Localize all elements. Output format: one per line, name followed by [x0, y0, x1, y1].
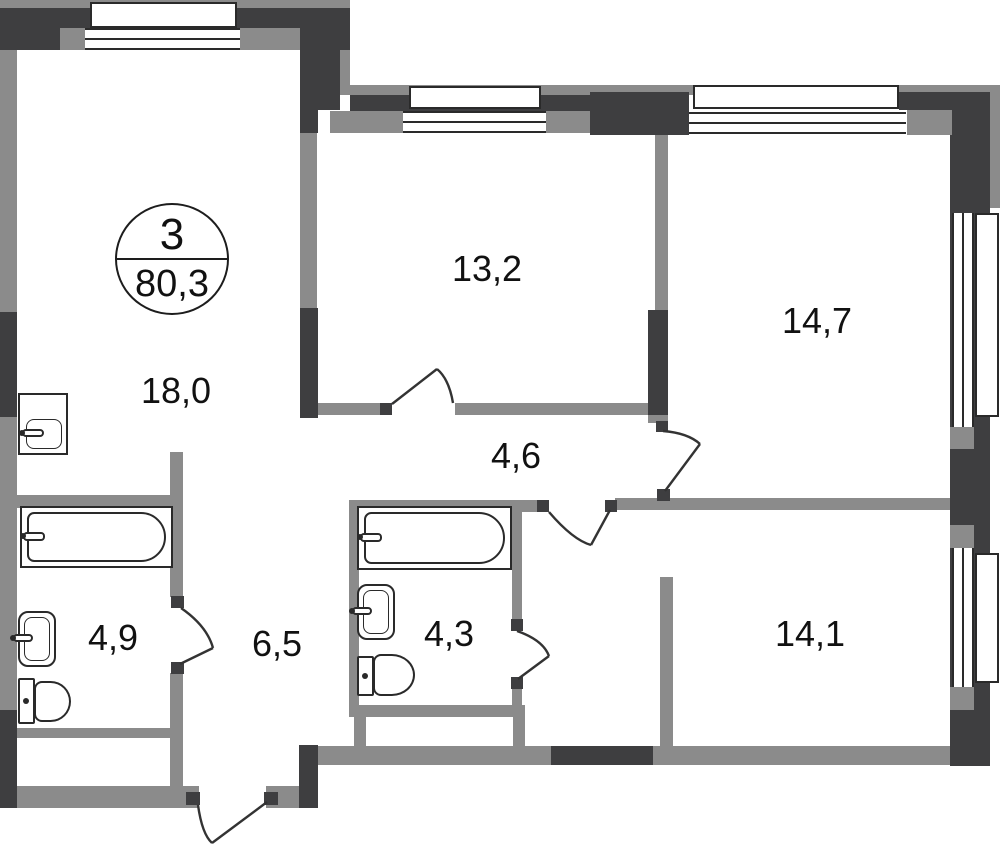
wall-segment — [648, 415, 668, 423]
toilet-icon — [34, 681, 71, 722]
wall-segment — [354, 705, 525, 717]
window — [689, 112, 906, 134]
faucet-dot — [357, 534, 363, 540]
wall-segment — [653, 746, 950, 765]
door-hall — [537, 500, 617, 545]
window — [85, 28, 240, 50]
room-label-bedroom-top: 13,2 — [452, 251, 522, 287]
bathtub-inner — [364, 512, 505, 564]
wall-segment — [0, 786, 199, 808]
window — [952, 548, 974, 687]
wall-segment — [266, 786, 299, 808]
exterior-wall — [899, 92, 950, 110]
wall-segment — [354, 717, 366, 746]
faucet-icon — [23, 532, 45, 541]
exterior-wall — [0, 710, 17, 808]
window-pane-line — [962, 548, 964, 687]
exterior-wall — [300, 50, 340, 110]
faucet-dot — [349, 608, 355, 614]
toilet-button — [362, 673, 368, 679]
wall-segment — [513, 717, 525, 746]
window — [952, 213, 974, 427]
door-room-13-2 — [380, 369, 453, 415]
wall-segment — [990, 85, 1000, 208]
wall-block — [300, 308, 318, 418]
faucet-dot — [10, 635, 16, 641]
wall-block — [648, 310, 668, 415]
window-jamb — [546, 111, 590, 133]
wall-segment — [660, 577, 673, 746]
room-label-hall-lower: 6,5 — [252, 626, 302, 662]
window-sill — [90, 2, 237, 28]
window-pane-line — [85, 38, 240, 40]
room-label-living: 18,0 — [141, 373, 211, 409]
room-label-bathroom-left: 4,9 — [88, 620, 138, 656]
toilet-button — [23, 698, 29, 704]
window-jamb — [330, 111, 403, 133]
window-sill — [693, 85, 899, 109]
wall-segment — [950, 427, 974, 449]
window-sill — [409, 86, 541, 109]
toilet-icon — [373, 654, 415, 696]
wall-segment — [300, 133, 317, 308]
wall-segment — [17, 728, 176, 738]
wall-segment — [318, 746, 551, 765]
door-room-14-7 — [656, 421, 700, 501]
window-jamb — [907, 110, 952, 135]
door-bathroom-4-9 — [171, 596, 213, 674]
window-pane-line — [403, 121, 546, 123]
wall-segment — [512, 500, 522, 620]
faucet-icon — [360, 533, 382, 542]
entrance-door — [186, 792, 278, 843]
faucet-dot — [20, 533, 26, 539]
door-bathroom-4-3 — [511, 619, 549, 689]
faucet-icon — [13, 634, 33, 642]
wall-segment — [0, 50, 17, 312]
window-pane-line — [962, 213, 964, 427]
bathtub-inner — [27, 512, 166, 562]
exterior-wall — [590, 92, 689, 135]
room-label-bathroom-middle: 4,3 — [424, 616, 474, 652]
wall-segment — [655, 135, 668, 310]
faucet-icon — [22, 429, 44, 437]
room-label-hall-upper: 4,6 — [491, 438, 541, 474]
window — [403, 111, 546, 133]
window-pane-line — [689, 122, 906, 124]
wall-block — [299, 745, 318, 808]
exterior-wall — [551, 746, 653, 765]
exterior-wall — [0, 312, 17, 417]
floor-plan: 18,0 13,2 14,7 4,6 4,9 6,5 4,3 14,1 3 80… — [0, 0, 1000, 846]
wall-segment — [615, 498, 950, 510]
unit-badge: 3 80,3 — [115, 203, 229, 315]
wall-segment — [950, 687, 974, 710]
unit-rooms-count: 3 — [117, 208, 227, 262]
window-sill — [975, 213, 999, 417]
exterior-wall — [300, 110, 318, 133]
window-jamb — [240, 28, 300, 50]
wall-segment — [0, 417, 17, 710]
room-label-bedroom-bottom: 14,1 — [775, 616, 845, 652]
wall-segment — [455, 403, 650, 415]
room-label-bedroom-right: 14,7 — [782, 303, 852, 339]
window-jamb — [60, 28, 85, 50]
wall-segment — [950, 525, 974, 548]
faucet-dot — [19, 430, 25, 436]
window-sill — [975, 553, 999, 683]
unit-total-area: 80,3 — [117, 259, 227, 309]
wall-segment — [317, 403, 380, 415]
faucet-icon — [352, 607, 372, 615]
